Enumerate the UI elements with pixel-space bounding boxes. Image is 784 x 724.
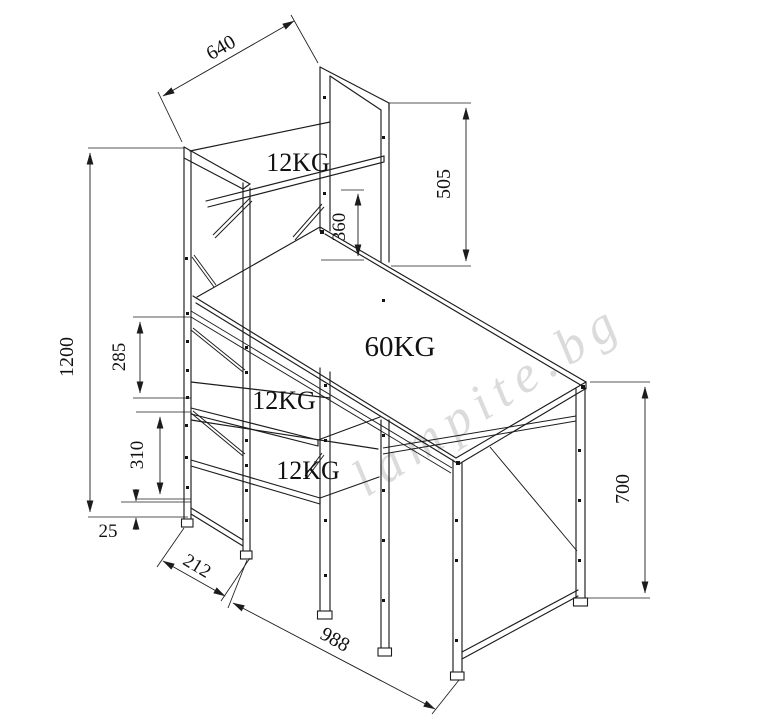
- dim-shelf-depth: 212: [157, 528, 250, 601]
- dim-285-label: 285: [109, 343, 130, 372]
- dim-desk-length: 988: [228, 560, 459, 714]
- shelf-boards: [190, 122, 384, 504]
- dim-total-height: 1200: [56, 148, 188, 517]
- dim-desk-to-middle-shelf: 285: [109, 317, 191, 398]
- desk-side-brace: [490, 447, 577, 551]
- dim-25-label: 25: [99, 521, 118, 542]
- dim-988-label: 988: [316, 623, 353, 657]
- dim-1200-label: 1200: [56, 337, 78, 377]
- dim-505-label: 505: [433, 169, 455, 199]
- desktop-load-label: 60KG: [365, 331, 436, 363]
- dim-bottom-clearance: 25: [99, 489, 192, 542]
- dim-middle-to-bottom-shelf: 310: [127, 412, 191, 499]
- dim-panel-height: 505: [389, 103, 471, 266]
- dim-shelf-width: 640: [158, 15, 318, 142]
- technical-drawing-page: lampite.bg: [0, 0, 784, 724]
- middle-shelf-load-label: 12KG: [252, 386, 316, 415]
- dim-212-label: 212: [179, 550, 214, 583]
- top-shelf-load-label: 12KG: [266, 148, 330, 177]
- dim-640-label: 640: [203, 31, 240, 65]
- dim-700-label: 700: [612, 474, 634, 504]
- shelf-left-frame: [182, 147, 253, 559]
- dim-desk-to-top-shelf: 360: [321, 190, 364, 260]
- dim-360-label: 360: [329, 213, 350, 242]
- watermark-text: lampite.bg: [342, 291, 634, 508]
- dim-310-label: 310: [127, 441, 148, 470]
- dim-desk-height: 700: [588, 382, 650, 598]
- bottom-shelf-load-label: 12KG: [276, 456, 340, 485]
- diagram-canvas: lampite.bg: [0, 0, 784, 724]
